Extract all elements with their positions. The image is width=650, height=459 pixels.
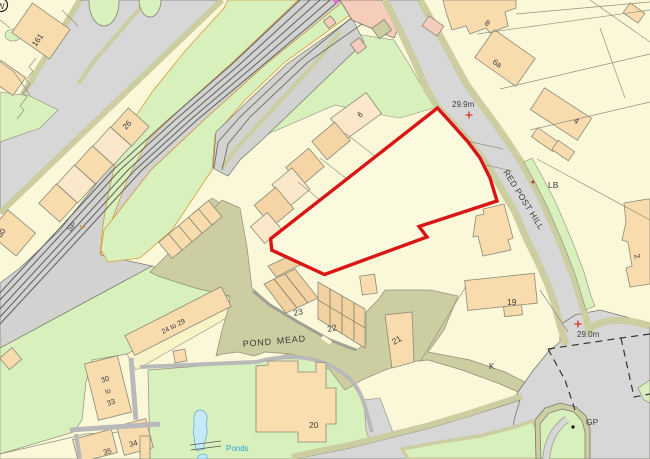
svg-text:LB: LB: [548, 180, 559, 190]
svg-text:29.0m: 29.0m: [577, 330, 600, 339]
svg-text:Ponds: Ponds: [226, 444, 249, 453]
svg-text:GP: GP: [586, 417, 599, 427]
svg-text:19: 19: [507, 297, 517, 307]
svg-text:29.9m: 29.9m: [452, 100, 475, 109]
svg-text:K: K: [489, 362, 495, 371]
svg-text:20: 20: [309, 420, 319, 430]
svg-text:W: W: [0, 2, 5, 11]
